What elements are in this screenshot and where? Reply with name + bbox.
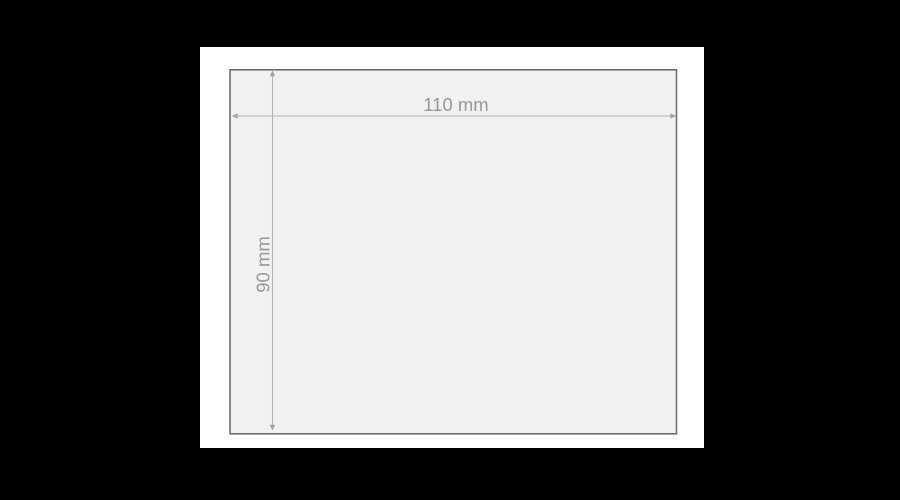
svg-text:110 mm: 110 mm — [423, 94, 488, 115]
svg-text:90 mm: 90 mm — [253, 236, 274, 293]
